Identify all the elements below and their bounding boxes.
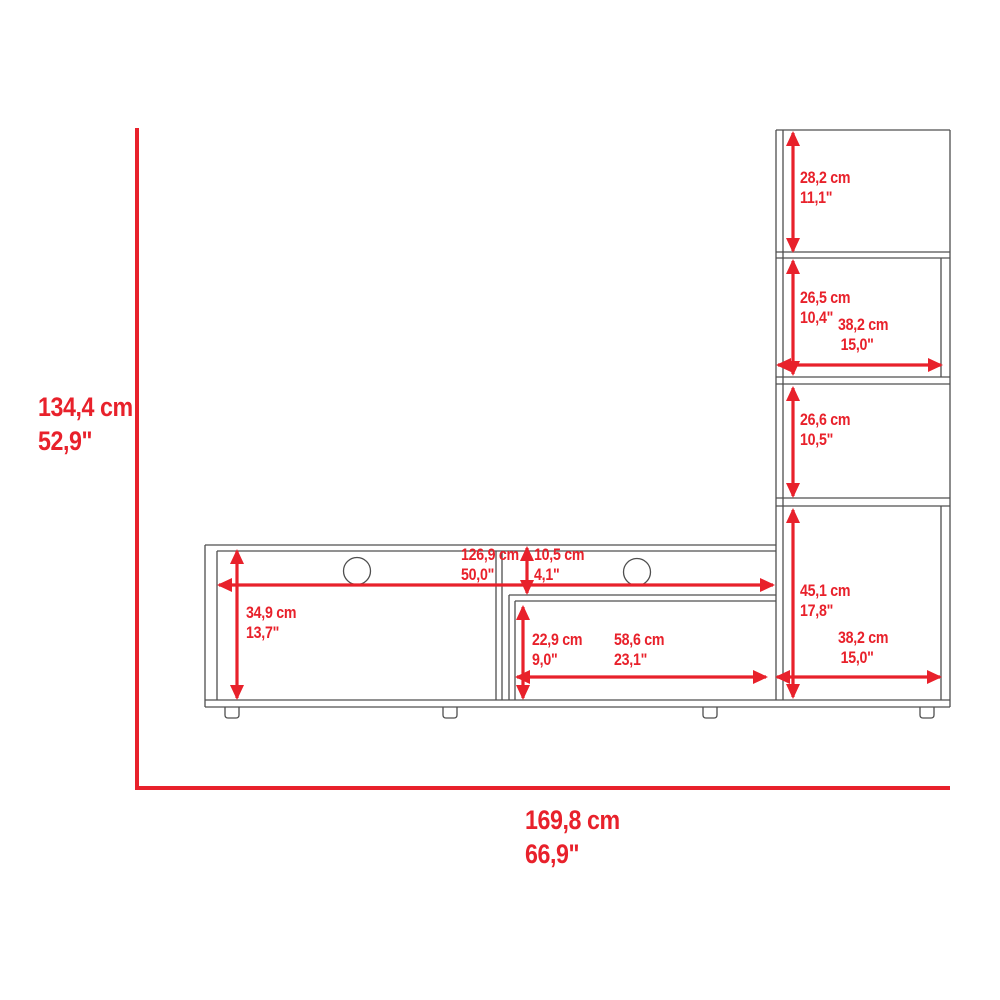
- dim-value-in: 66,9": [525, 837, 620, 871]
- dim-value-cm: 26,6 cm: [800, 410, 850, 430]
- dimension-diagram: 134,4 cm 52,9" 169,8 cm 66,9" 28,2 cm 11…: [0, 0, 1000, 1000]
- dim-value-cm: 22,9 cm: [532, 630, 582, 650]
- furniture-drawing: [0, 0, 1000, 1000]
- dim-value-cm: 38,2 cm: [838, 315, 888, 335]
- dim-stand-top-width: 126,9 cm 50,0": [461, 545, 519, 585]
- dim-value-in: 10,5": [800, 430, 850, 450]
- dim-tower-second-shelf-width: 38,2 cm 15,0": [838, 315, 888, 355]
- dim-value-cm: 126,9 cm: [461, 545, 519, 565]
- dim-value-cm: 26,5 cm: [800, 288, 850, 308]
- dim-value-in: 15,0": [841, 335, 889, 355]
- dim-tower-top-shelf-height: 28,2 cm 11,1": [800, 168, 850, 208]
- dim-value-in: 17,8": [800, 601, 850, 621]
- dim-tower-bottom-cabinet-width: 38,2 cm 15,0": [838, 628, 888, 668]
- dim-value-in: 50,0": [461, 565, 519, 585]
- dim-value-in: 23,1": [614, 650, 664, 670]
- dim-value-cm: 10,5 cm: [534, 545, 584, 565]
- dim-value-cm: 169,8 cm: [525, 803, 620, 837]
- dim-overall-height: 134,4 cm 52,9": [38, 390, 133, 458]
- feet: [225, 707, 934, 718]
- foot: [225, 707, 239, 718]
- dim-stand-left-compartment-height: 34,9 cm 13,7": [246, 603, 296, 643]
- dim-stand-shelf-height: 22,9 cm 9,0": [532, 630, 582, 670]
- dim-value-cm: 34,9 cm: [246, 603, 296, 623]
- dim-value-in: 52,9": [38, 424, 133, 458]
- dim-value-in: 13,7": [246, 623, 296, 643]
- dim-stand-top-clearance: 10,5 cm 4,1": [534, 545, 584, 585]
- dim-value-cm: 28,2 cm: [800, 168, 850, 188]
- dim-tower-third-shelf-height: 26,6 cm 10,5": [800, 410, 850, 450]
- dim-value-in: 9,0": [532, 650, 582, 670]
- dim-value-cm: 38,2 cm: [838, 628, 888, 648]
- dim-value-in: 11,1": [800, 188, 850, 208]
- dim-value-in: 4,1": [534, 565, 584, 585]
- dim-value-cm: 134,4 cm: [38, 390, 133, 424]
- dim-overall-width: 169,8 cm 66,9": [525, 803, 620, 871]
- foot: [443, 707, 457, 718]
- overall-boundary-lines: [137, 128, 950, 788]
- foot: [703, 707, 717, 718]
- dim-stand-shelf-width: 58,6 cm 23,1": [614, 630, 664, 670]
- dim-tower-bottom-cabinet-height: 45,1 cm 17,8": [800, 581, 850, 621]
- foot: [920, 707, 934, 718]
- dim-value-cm: 58,6 cm: [614, 630, 664, 650]
- dim-value-in: 15,0": [841, 648, 889, 668]
- cable-hole-right: [624, 559, 651, 586]
- dim-value-cm: 45,1 cm: [800, 581, 850, 601]
- cable-hole-left: [344, 558, 371, 585]
